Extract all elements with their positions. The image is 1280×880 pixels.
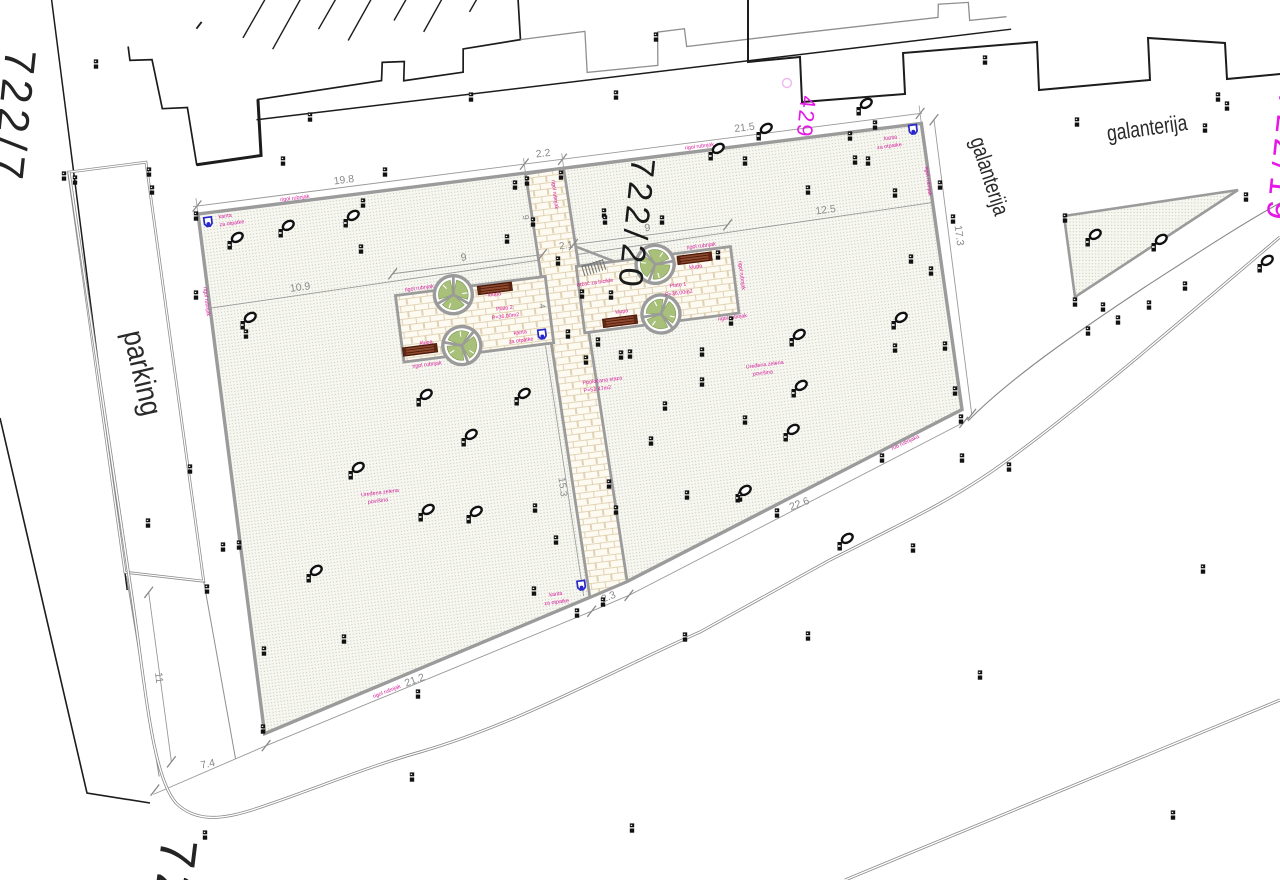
svg-text:429: 429: [792, 94, 821, 139]
svg-text:2.1: 2.1: [558, 240, 574, 253]
svg-text:2.2: 2.2: [535, 147, 551, 161]
svg-text:11: 11: [152, 672, 165, 684]
